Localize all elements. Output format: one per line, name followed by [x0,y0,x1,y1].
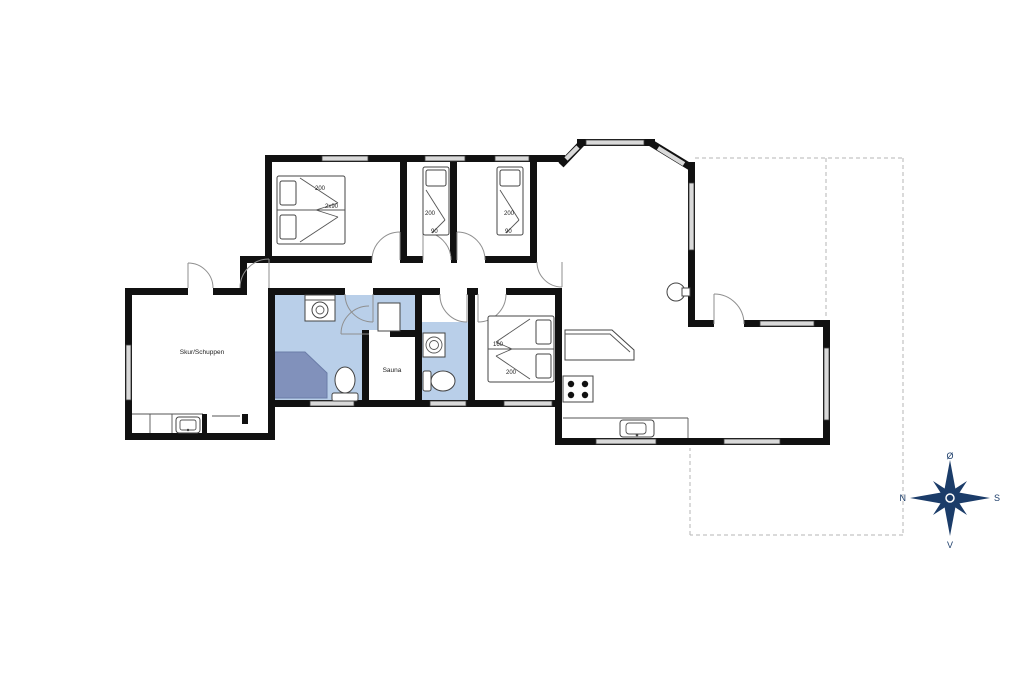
compass-hub [943,491,957,505]
window-bedroom4-south [504,401,552,406]
shed-label: Skur/Schuppen [180,349,225,356]
window-bedroom3 [495,156,529,161]
bed2-width-label: 90 [431,229,438,235]
compass-east-label: Ø [946,451,953,461]
bathroom1-shelf [378,303,400,331]
stove-icon [563,376,593,402]
bed1-length-label: 200 [315,186,326,192]
compass-south-label: S [994,493,1000,503]
window-bedroom1 [322,156,368,161]
bed3-length-label: 200 [504,211,515,217]
window-bathroom2-south [430,401,466,406]
compass-rose: Ø N S V [900,451,1001,550]
shed-partition [202,414,248,433]
window-bedroom2 [425,156,465,161]
window-living-east [689,183,694,250]
door-bedroom1 [372,232,400,260]
window-extension-south [724,439,780,444]
window-extension-east [824,348,829,420]
terrace-dashed-outline [690,158,903,535]
kitchen-sink-icon [620,420,654,437]
bed-single-bedroom2: 200 90 [423,167,449,235]
door-bedroom2 [423,232,451,260]
window-kitchen-south [596,439,656,444]
bed-double-bedroom4: 160 200 [488,316,554,382]
window-bathroom1-south [310,401,354,406]
bed4-length-label: 200 [506,370,517,376]
bed1-size-label: 2x90 [325,204,339,210]
window-shed-west [126,345,131,400]
washing-machine-icon [305,295,335,321]
sink-icon-bathroom2 [423,333,445,357]
walls [125,139,830,445]
wall-lamp-icon [667,283,690,301]
window-extension-north [760,321,814,326]
floor-plan-drawing: 200 2x90 200 90 200 90 160 200 [0,0,1024,682]
bed4-width-label: 160 [493,342,504,348]
bed3-width-label: 90 [505,229,512,235]
shed-sink-icon [176,417,200,433]
door-bedroom3 [457,232,485,260]
toilet-icon-bathroom2 [423,371,455,391]
bed2-length-label: 200 [425,211,436,217]
bed-double-bedroom1: 200 2x90 [277,176,345,244]
window-bay-right [658,148,684,164]
compass-west-label: V [947,540,953,550]
door-hall-living [537,262,562,287]
window-bay-top [586,140,644,145]
door-extension [714,294,744,324]
door-bathroom2 [440,294,467,322]
sauna-label: Sauna [383,367,402,374]
bed-single-bedroom3: 200 90 [497,167,523,235]
compass-north-label: N [900,493,907,503]
door-shed-exterior [188,263,213,288]
floor-plan-page: 200 2x90 200 90 200 90 160 200 [0,0,1024,682]
